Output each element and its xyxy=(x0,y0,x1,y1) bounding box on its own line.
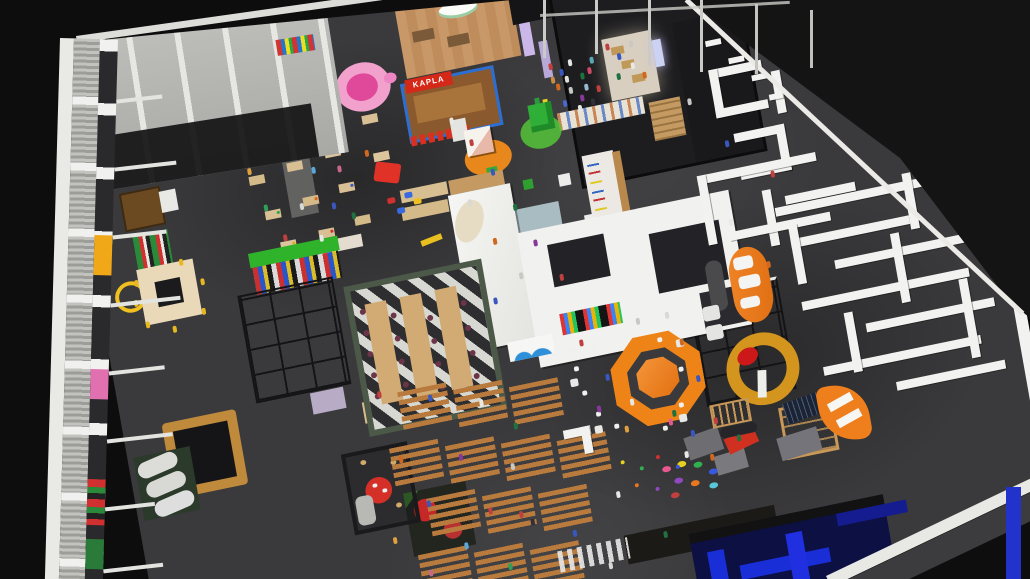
white-cube-exhibit xyxy=(463,126,494,157)
blue-wall xyxy=(707,549,736,579)
restaurant-table xyxy=(434,286,473,390)
bench-group xyxy=(509,377,564,425)
capsule-window xyxy=(738,273,762,290)
maze-wall xyxy=(801,268,969,311)
blue-wall xyxy=(740,547,832,579)
green-insert xyxy=(85,539,104,569)
long-table xyxy=(401,199,450,221)
inner-room xyxy=(547,233,611,287)
visitors-crowd xyxy=(548,63,553,71)
pink-satellite xyxy=(383,71,397,84)
pink-insert xyxy=(90,369,109,399)
capsule-window xyxy=(732,255,754,271)
yellow-insert xyxy=(93,235,112,275)
scatter-toys xyxy=(620,460,625,465)
bench-group xyxy=(389,439,444,487)
bench-group xyxy=(445,436,500,484)
white-banner-flag xyxy=(757,370,766,398)
restaurant-table xyxy=(399,293,438,397)
bench-group xyxy=(501,434,556,482)
bench-group xyxy=(397,382,452,430)
roof-column xyxy=(543,0,546,58)
mural-painting xyxy=(275,34,315,56)
restaurant-chairs xyxy=(359,308,366,315)
tent-white-mark xyxy=(836,408,863,428)
green-sculpture xyxy=(527,101,555,133)
restaurant-table xyxy=(365,300,404,404)
truss-frame xyxy=(237,276,351,403)
capsule-window xyxy=(740,295,761,310)
kids-chairs xyxy=(391,186,400,193)
bench-group xyxy=(474,543,529,579)
maze-wall xyxy=(896,360,1006,391)
bench-group xyxy=(453,380,508,428)
green-box xyxy=(523,178,534,190)
lattice-shelf xyxy=(648,96,686,141)
blue-edge-wall xyxy=(1006,487,1021,579)
maze-wall xyxy=(788,223,807,284)
red-green-insert xyxy=(86,479,105,525)
white-counter xyxy=(159,188,179,213)
white-tables xyxy=(570,378,579,387)
red-triangle-table xyxy=(373,161,401,183)
square-ring-table xyxy=(136,258,202,325)
table-hole xyxy=(154,277,184,307)
roof-column xyxy=(595,0,598,54)
beanbags xyxy=(662,465,672,473)
roof-column xyxy=(700,0,703,72)
maze-wall xyxy=(762,189,781,246)
bench-group xyxy=(538,484,593,532)
bench-group xyxy=(482,486,537,534)
roof-column xyxy=(755,4,758,74)
floor-marker-yellow xyxy=(420,233,442,246)
tent-white-mark xyxy=(827,392,854,412)
roof-column xyxy=(810,10,813,68)
rendered-scene: KAPLA xyxy=(0,0,1030,579)
white-pedestal xyxy=(558,173,572,187)
maze-wall xyxy=(890,232,911,303)
